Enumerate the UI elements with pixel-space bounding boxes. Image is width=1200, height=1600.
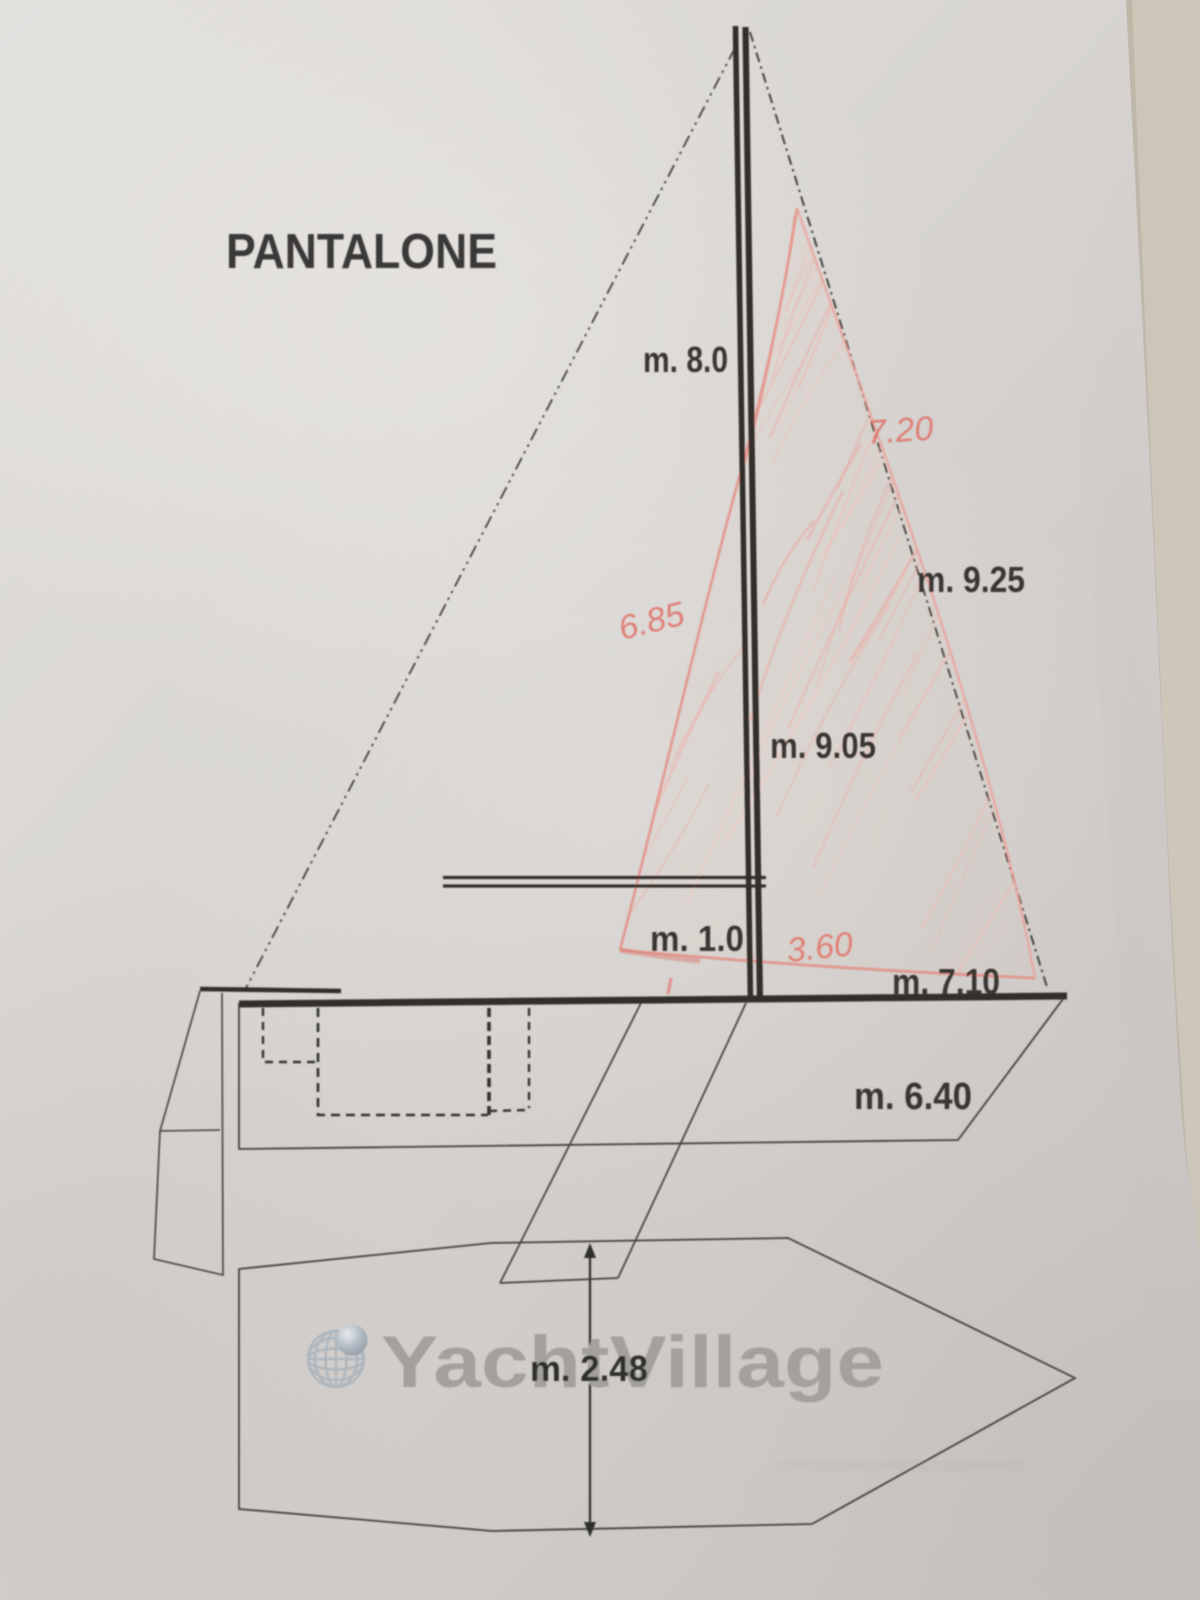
- svg-text:m. 9.25: m. 9.25: [917, 559, 1025, 600]
- svg-text:m. 9.05: m. 9.05: [770, 725, 876, 766]
- svg-text:m. 7.10: m. 7.10: [892, 961, 1000, 1002]
- svg-text:m. 2.48: m. 2.48: [530, 1348, 648, 1389]
- svg-text:m. 8.0: m. 8.0: [643, 339, 728, 380]
- svg-text:7.20: 7.20: [866, 409, 935, 452]
- svg-text:m. 6.40: m. 6.40: [854, 1076, 972, 1118]
- svg-text:PANTALONE: PANTALONE: [226, 225, 497, 279]
- svg-text:3.60: 3.60: [785, 925, 855, 970]
- svg-text:m. 1.0: m. 1.0: [650, 918, 744, 959]
